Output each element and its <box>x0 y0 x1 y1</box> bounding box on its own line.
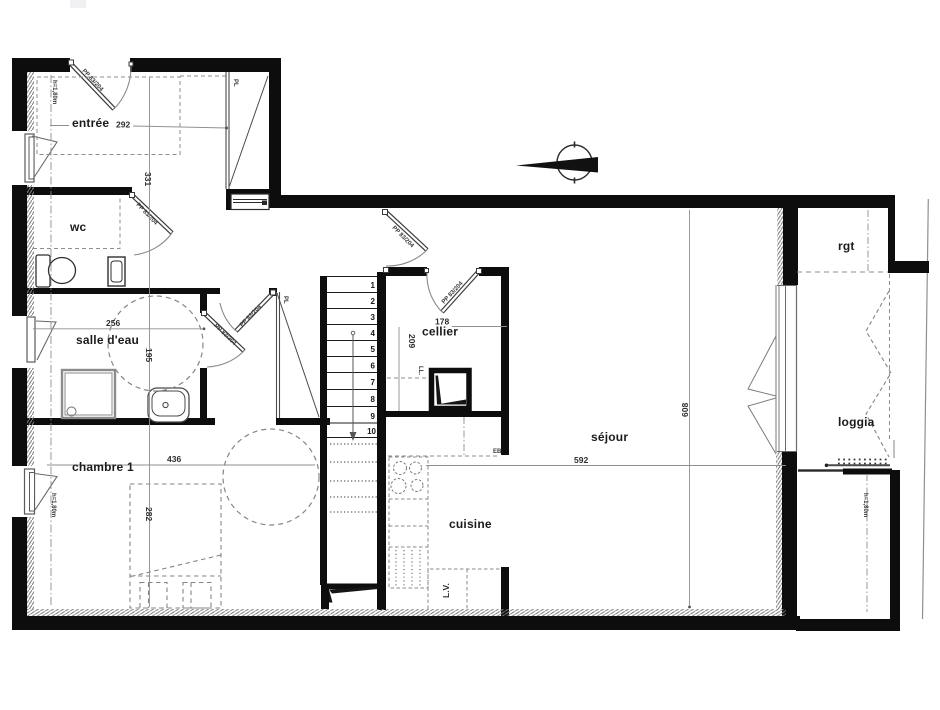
svg-text:4: 4 <box>371 329 376 338</box>
svg-text:h=1,80m: h=1,80m <box>862 493 868 517</box>
svg-text:292: 292 <box>116 120 130 130</box>
svg-text:209: 209 <box>407 334 417 348</box>
svg-text:592: 592 <box>574 455 588 465</box>
svg-text:entrée: entrée <box>72 116 109 130</box>
svg-text:chambre 1: chambre 1 <box>72 460 134 474</box>
svg-text:256: 256 <box>106 318 120 328</box>
svg-text:5: 5 <box>371 345 376 354</box>
svg-text:608: 608 <box>680 403 690 417</box>
svg-text:3: 3 <box>371 313 376 322</box>
svg-text:rgt: rgt <box>838 239 855 253</box>
svg-text:195: 195 <box>144 348 154 362</box>
svg-text:EB: EB <box>493 449 502 455</box>
svg-text:PL: PL <box>232 79 238 87</box>
svg-text:L.V.: L.V. <box>441 583 451 598</box>
svg-text:8: 8 <box>371 395 376 404</box>
svg-text:10: 10 <box>367 427 376 436</box>
svg-text:séjour: séjour <box>591 430 628 444</box>
svg-text:h=1,80m: h=1,80m <box>51 80 57 104</box>
svg-text:331: 331 <box>143 172 153 186</box>
svg-text:loggia: loggia <box>838 415 875 429</box>
svg-text:9: 9 <box>371 412 376 421</box>
svg-text:salle d'eau: salle d'eau <box>76 333 139 347</box>
svg-text:436: 436 <box>167 454 181 464</box>
svg-text:282: 282 <box>144 507 154 521</box>
svg-text:7: 7 <box>371 378 376 387</box>
svg-text:wc: wc <box>69 220 87 234</box>
svg-text:6: 6 <box>371 362 376 371</box>
svg-text:1: 1 <box>371 281 376 290</box>
svg-text:2: 2 <box>371 297 376 306</box>
svg-text:cellier: cellier <box>422 325 458 339</box>
svg-text:cuisine: cuisine <box>449 517 492 531</box>
svg-text:LL.: LL. <box>417 366 423 375</box>
svg-text:PL: PL <box>282 296 288 304</box>
